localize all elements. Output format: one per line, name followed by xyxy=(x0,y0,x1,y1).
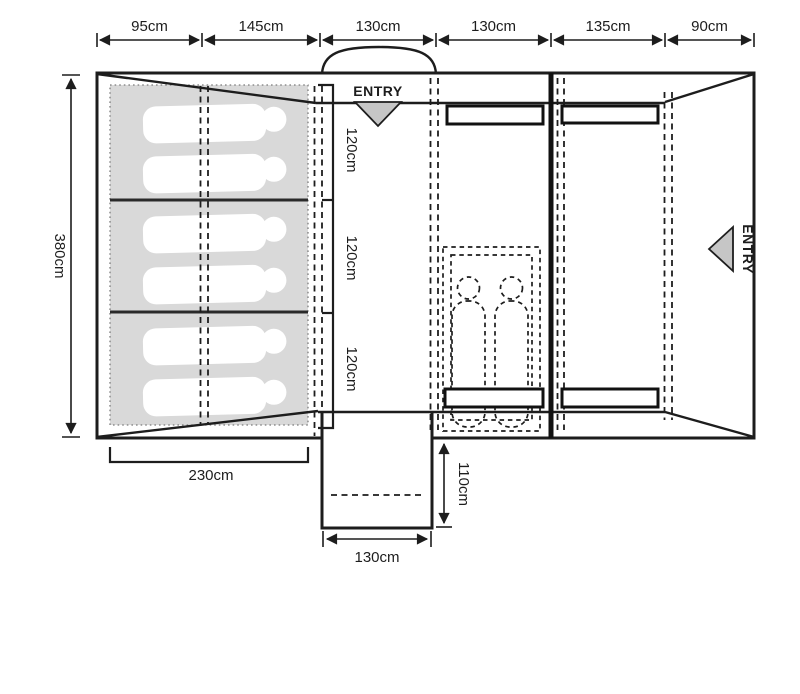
right-cone-top xyxy=(665,74,754,102)
dimension-porch-depth: 110cm xyxy=(436,444,472,527)
entry-down-arrow-icon xyxy=(355,102,401,126)
porch xyxy=(322,412,432,528)
dim-label: 90cm xyxy=(691,18,728,35)
dim-label: 120cm xyxy=(343,235,360,280)
entry-right-label: ENTRY xyxy=(740,224,756,274)
dim-label: 230cm xyxy=(188,467,233,484)
dimension-bedroom-width: 230cm xyxy=(110,447,308,484)
dim-label: 120cm xyxy=(343,346,360,391)
dim-label: 130cm xyxy=(354,549,399,566)
entry-top: ENTRY xyxy=(353,83,403,126)
window xyxy=(562,389,658,407)
porch-outline xyxy=(322,412,432,528)
tent-floor-plan: ENTRY ENTRY 95cm 145cm 130cm 130cm 135cm… xyxy=(0,0,800,694)
window xyxy=(447,106,543,124)
dim-label: 110cm xyxy=(455,462,472,506)
window xyxy=(445,389,543,407)
window xyxy=(562,106,658,123)
dim-label: 120cm xyxy=(343,127,360,172)
door-canopy-arc xyxy=(322,47,436,74)
dim-label: 380cm xyxy=(51,233,68,278)
dimension-porch-width: 130cm xyxy=(323,531,431,566)
entry-left-arrow-icon xyxy=(709,227,733,271)
dimension-top-widths: 95cm 145cm 130cm 130cm 135cm 90cm xyxy=(97,18,754,47)
dimension-overall-depth: 380cm xyxy=(51,75,80,437)
dim-label: 130cm xyxy=(355,18,400,35)
right-cone-bottom xyxy=(665,412,754,437)
entry-right: ENTRY xyxy=(709,224,756,274)
dim-label: 135cm xyxy=(585,18,630,35)
dim-label: 145cm xyxy=(238,18,283,35)
bedroom-area xyxy=(110,85,308,425)
entry-top-label: ENTRY xyxy=(353,83,403,99)
dim-label: 95cm xyxy=(131,18,168,35)
dim-label: 130cm xyxy=(471,18,516,35)
dimension-living-sections: 120cm 120cm 120cm xyxy=(318,85,360,428)
